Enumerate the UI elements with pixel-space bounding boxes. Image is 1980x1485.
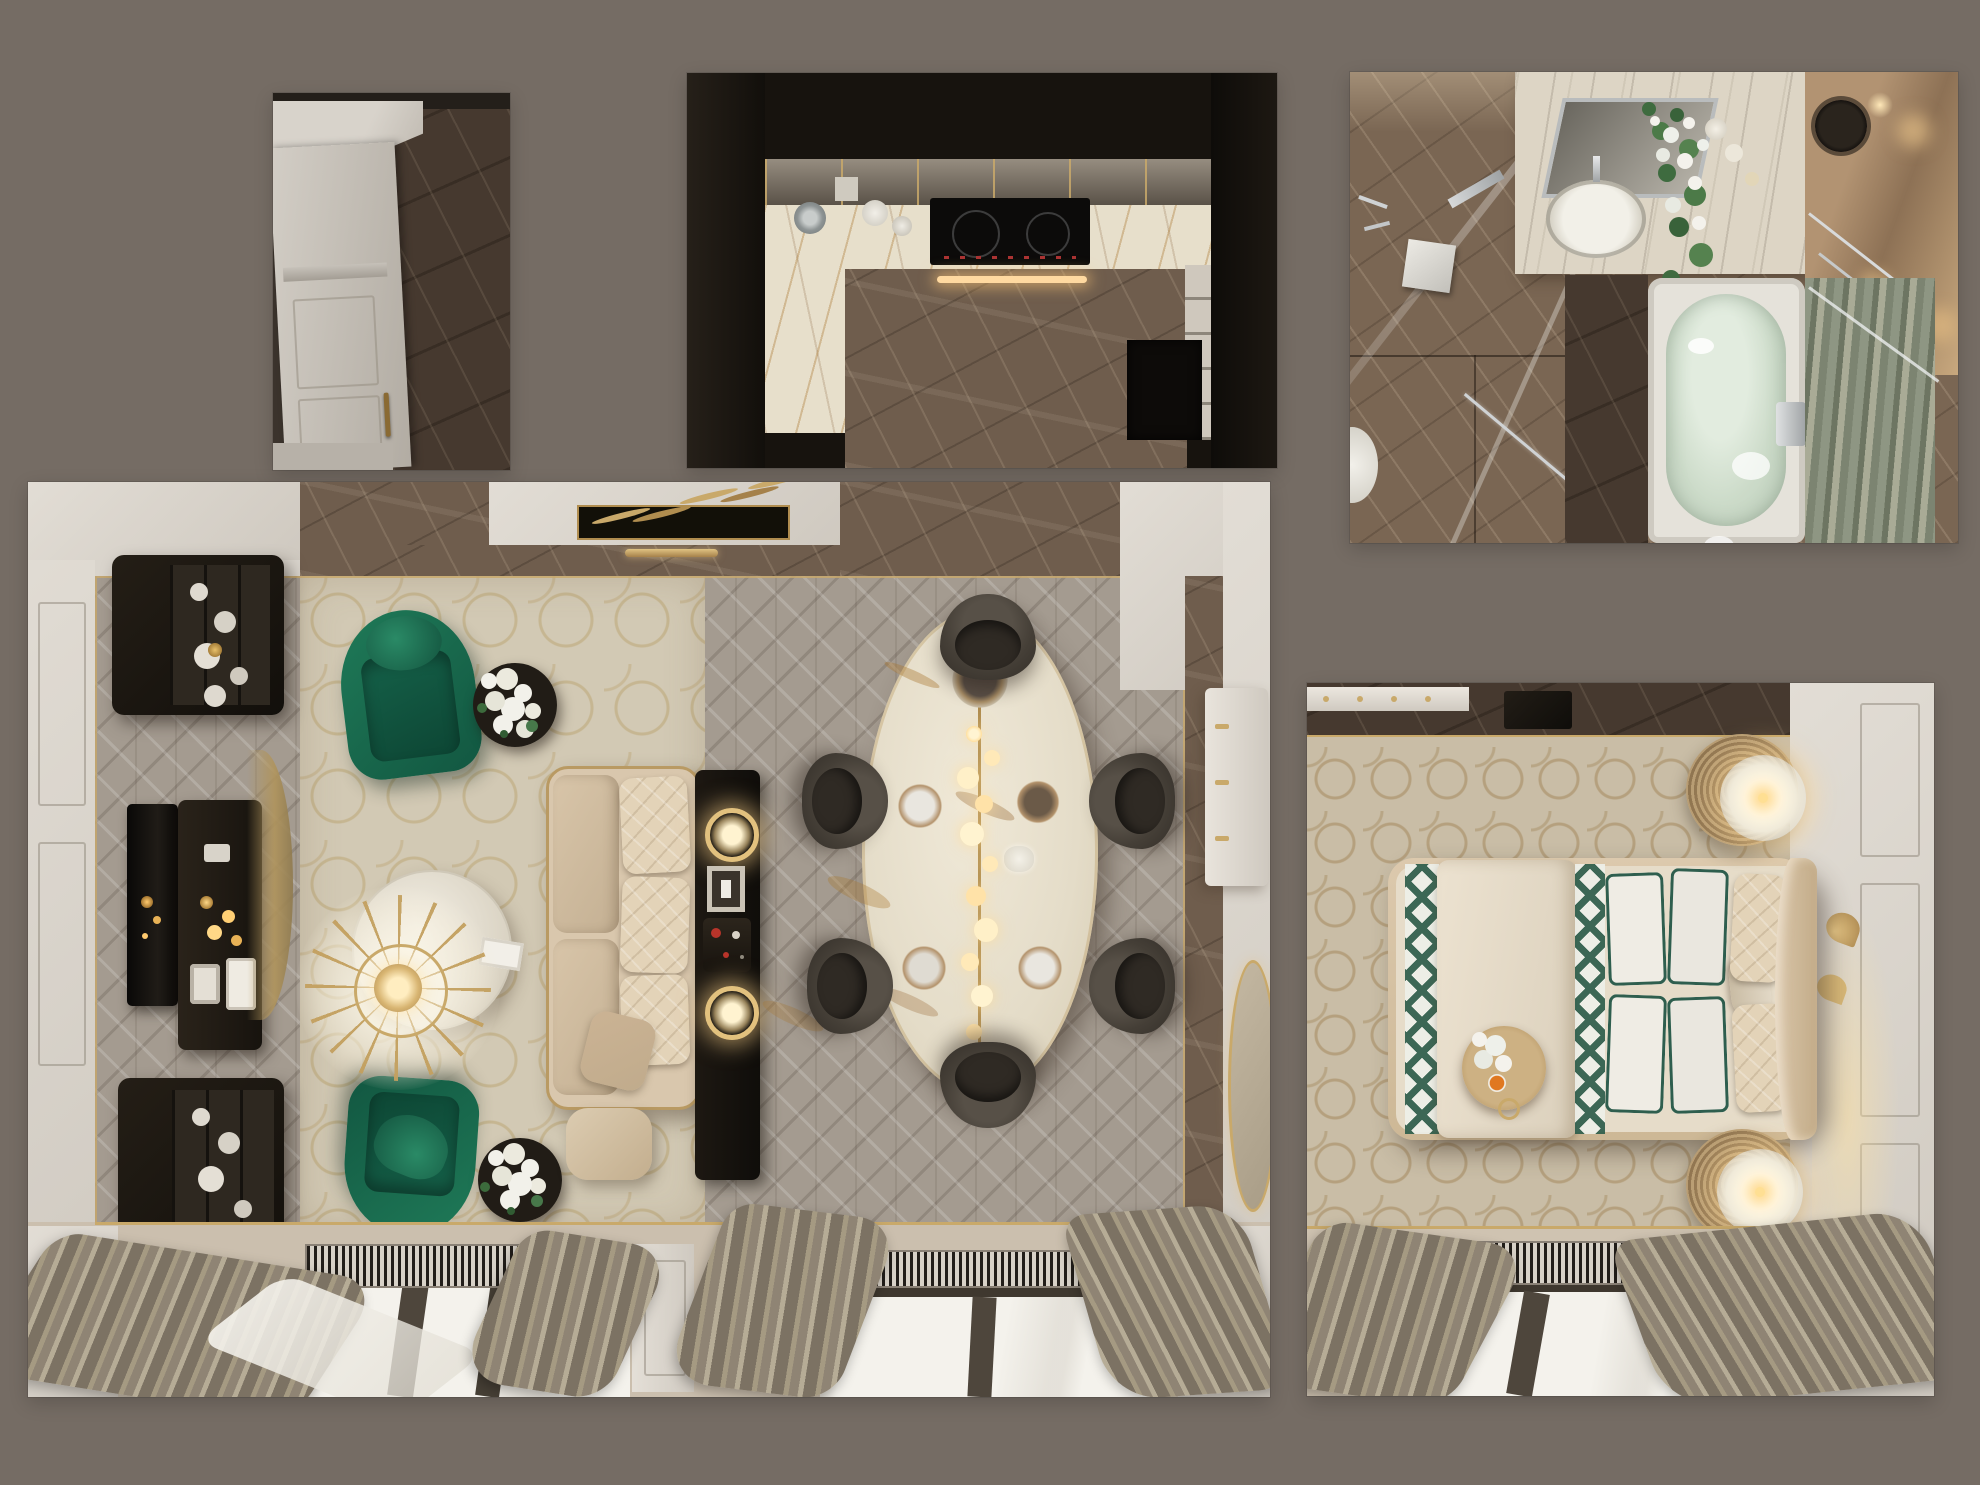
top-wall-left <box>28 482 300 560</box>
tub-faucet <box>1776 402 1806 446</box>
brass-door-handle <box>384 393 391 437</box>
bath-water <box>1666 294 1786 526</box>
hood-door <box>835 177 858 201</box>
hydrangea-leaves-1 <box>477 703 487 713</box>
sofa-back-console <box>695 770 760 1180</box>
water-reflections <box>1688 338 1714 354</box>
dark-marble-floor <box>393 93 510 470</box>
flower-blossoms <box>1650 116 1660 126</box>
white-chest <box>1205 688 1268 886</box>
vitrine-glassware <box>192 1108 210 1126</box>
tv-reflections <box>141 896 153 908</box>
hydrangea-1 <box>481 673 497 689</box>
dresser-handles <box>1323 696 1329 702</box>
hydrangea-side-table-2 <box>478 1138 562 1222</box>
window-2-mullion <box>967 1296 996 1397</box>
threshold <box>273 443 393 470</box>
tray-handle <box>1498 1098 1520 1120</box>
shower-handle-2 <box>1364 221 1390 231</box>
vitrine-gold-decor <box>208 643 222 657</box>
bedroom-panel <box>1307 683 1934 1396</box>
door-panel-upper <box>293 295 380 389</box>
render-collage <box>0 0 1980 1485</box>
right-cabinet-column <box>1211 73 1277 468</box>
led-strip <box>937 276 1087 283</box>
black-speaker <box>1815 100 1867 152</box>
coral-decor <box>1004 846 1034 872</box>
oval-dining-table <box>862 610 1098 1094</box>
gold-oval-mirror <box>1228 960 1270 1212</box>
pouf <box>566 1108 652 1180</box>
teapot <box>862 200 888 226</box>
tv-screen <box>127 804 178 1006</box>
pillow-1 <box>1605 872 1667 986</box>
bathroom-panel <box>1350 72 1958 543</box>
wainscot-2 <box>38 842 86 1066</box>
bedroom-tv <box>1504 691 1572 729</box>
pillow-2 <box>1667 868 1729 986</box>
radio-dials <box>711 928 721 938</box>
headboard <box>1775 858 1817 1140</box>
hydrangea-2 <box>488 1150 504 1166</box>
bed <box>1388 858 1817 1140</box>
white-entry-door <box>273 142 411 470</box>
wall-molding-1 <box>1860 703 1920 857</box>
shower-head <box>1402 239 1456 293</box>
hydrangea-side-table-1 <box>473 663 557 747</box>
cookware <box>794 202 826 234</box>
onyx-glass-panel <box>1805 278 1935 543</box>
chest-handles <box>1215 724 1229 729</box>
table-center-seam <box>978 650 981 1054</box>
pendant-bubbles <box>966 726 982 742</box>
doorway <box>1127 340 1202 440</box>
fern-leaves <box>591 506 651 526</box>
wall-sconce-glow <box>1867 92 1893 118</box>
tray-flowers <box>1472 1032 1487 1047</box>
lamp-bulb-bottom <box>1755 1187 1765 1197</box>
glass-door-edge <box>1808 286 1939 382</box>
setting-right-1 <box>1010 774 1066 830</box>
breakfast-tray <box>1462 1026 1546 1110</box>
ceiling-fern-artwork <box>577 505 790 540</box>
gold-knobs <box>200 896 213 909</box>
bedroom-window-mullion <box>1506 1291 1550 1396</box>
right-marble-border <box>1185 576 1223 1228</box>
lamp-bulb-top <box>1758 793 1768 803</box>
tile-grout-v <box>1474 355 1476 543</box>
shower-handle-1 <box>1358 195 1388 209</box>
setting-left-1 <box>892 778 948 834</box>
vintage-radio <box>703 918 751 972</box>
nightstand-lamp-top <box>1720 755 1806 841</box>
vitrine-plates <box>190 583 208 601</box>
candles <box>1705 118 1727 140</box>
emerald-armchair-1 <box>332 602 485 783</box>
marble-divider <box>1565 275 1648 543</box>
sofa-pillow-1 <box>619 775 692 874</box>
oval-sink <box>1546 180 1646 258</box>
door-molding-rail <box>283 262 388 281</box>
crystal-chandelier <box>296 886 500 1090</box>
induction-cooktop <box>930 198 1090 265</box>
headwall-gold-line <box>1307 735 1790 737</box>
chandelier-hub <box>374 964 422 1012</box>
living-dining-panel <box>28 482 1270 1397</box>
ring-lamp-2 <box>705 986 759 1040</box>
diamond-throw-left <box>1405 864 1439 1134</box>
tray-drink <box>1488 1074 1506 1092</box>
pillow-3 <box>1605 994 1667 1114</box>
toilet <box>1350 427 1378 503</box>
burner-2 <box>1026 212 1070 256</box>
seat-cushion-1 <box>553 775 619 933</box>
framed-photo <box>707 866 745 912</box>
sink-faucet <box>1593 156 1600 182</box>
sill-gold-line <box>95 1222 1185 1225</box>
hydrangea-leaves-2 <box>480 1182 490 1192</box>
marble-counter-left <box>765 205 845 433</box>
setting-left-2 <box>896 940 952 996</box>
tall-cabinet-column <box>687 73 765 468</box>
wainscot-1 <box>38 602 86 806</box>
dresser <box>1307 687 1469 711</box>
beige-sofa <box>546 766 701 1110</box>
hallway-panel <box>273 93 510 470</box>
bowl <box>892 216 912 236</box>
vanity-mirror <box>1541 98 1718 198</box>
gold-pendant-bar <box>625 549 718 557</box>
kitchen-panel <box>687 73 1277 468</box>
hall-opening-kitchen <box>840 482 1120 576</box>
tray-1 <box>190 964 220 1004</box>
flower-leaves <box>1642 102 1656 116</box>
bedroom-curtain-right <box>1608 1210 1934 1396</box>
sofa-pillow-2 <box>619 876 690 974</box>
display-vitrine-top <box>112 555 284 715</box>
pillow-4 <box>1667 996 1729 1114</box>
ring-lamp-1 <box>705 808 759 862</box>
vitrine-glass <box>170 565 270 705</box>
bathtub <box>1648 278 1805 543</box>
cooktop-controls <box>944 256 1076 259</box>
diamond-throw-right <box>1575 864 1605 1134</box>
console-device <box>204 844 230 862</box>
emerald-armchair-2 <box>340 1074 482 1241</box>
setting-right-2 <box>1012 940 1068 996</box>
burner-1 <box>952 210 1000 258</box>
